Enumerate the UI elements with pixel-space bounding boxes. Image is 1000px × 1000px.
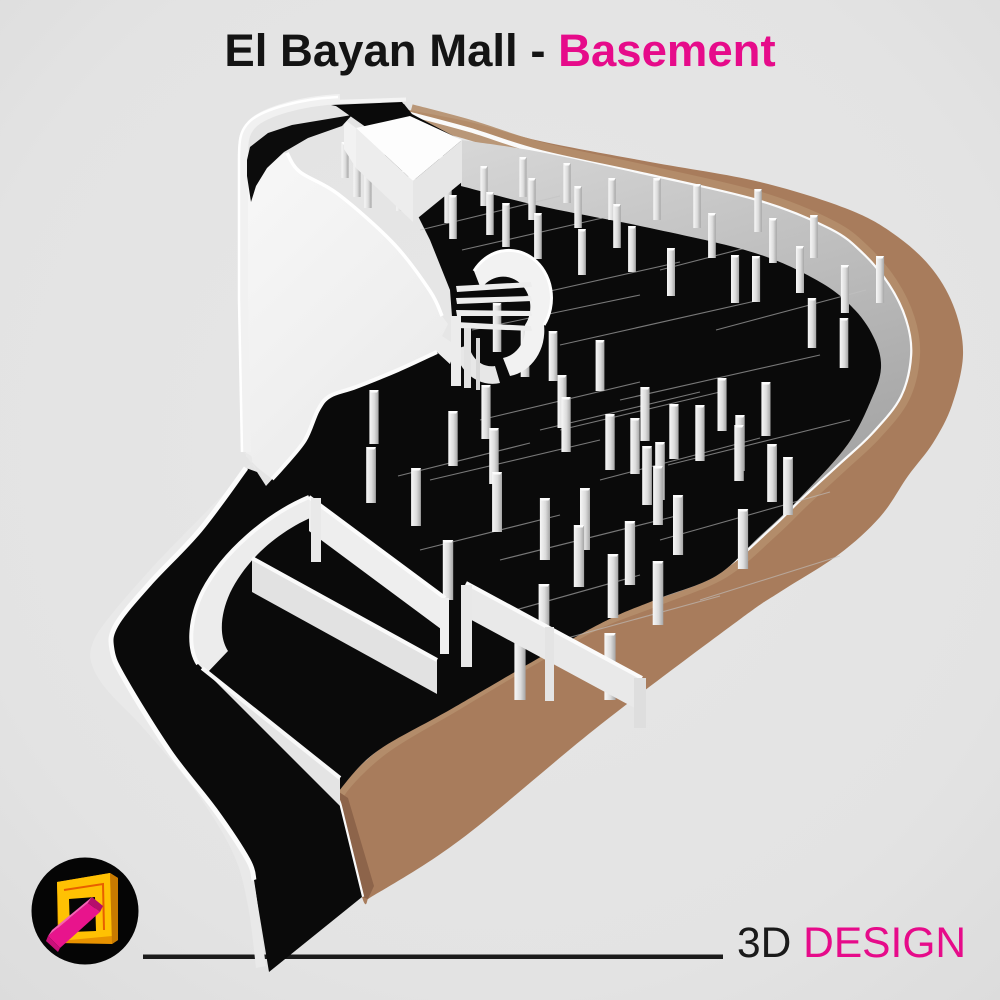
svg-text:El Bayan Mall - Basement: El Bayan Mall - Basement xyxy=(224,25,775,76)
svg-text:3D DESIGN: 3D DESIGN xyxy=(737,920,966,967)
